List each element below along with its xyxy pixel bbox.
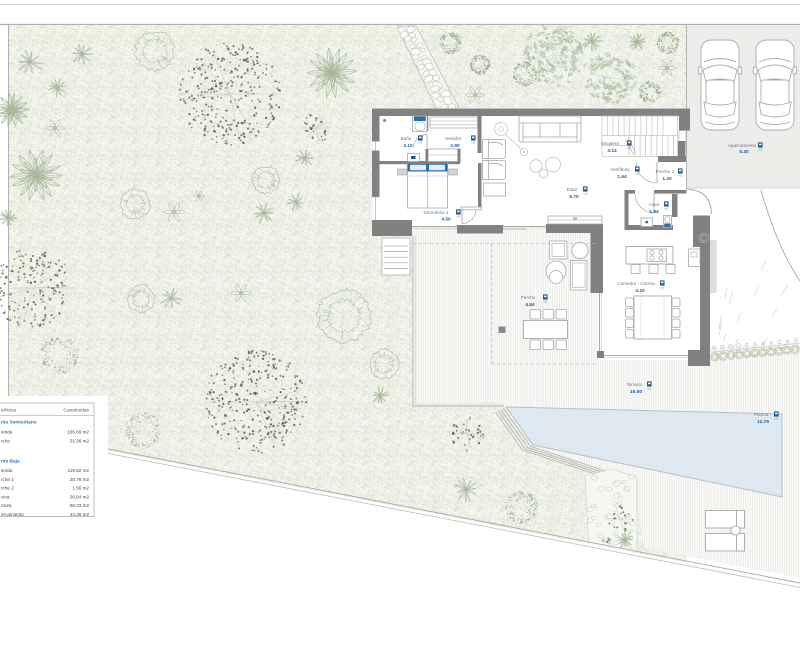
svg-text:m2: m2: [775, 416, 779, 420]
svg-text:Dormitorio 1: Dormitorio 1: [423, 210, 448, 215]
svg-text:28.76 m2: 28.76 m2: [70, 477, 90, 482]
svg-text:Porche 2: Porche 2: [656, 169, 675, 174]
svg-text:ercamiento: ercamiento: [1, 512, 24, 517]
svg-text:m2: m2: [665, 206, 669, 210]
svg-text:m2: m2: [636, 171, 640, 175]
svg-text:ienda: ienda: [1, 468, 13, 473]
svg-text:ienda: ienda: [1, 430, 13, 435]
svg-text:m2: m2: [419, 140, 423, 144]
svg-text:rche 1: rche 1: [1, 477, 14, 482]
svg-text:1.84: 1.84: [649, 209, 659, 215]
svg-text:m2: m2: [661, 285, 665, 289]
svg-text:4.50: 4.50: [441, 217, 451, 223]
svg-text:Terraza: Terraza: [626, 382, 642, 387]
svg-text:4.10: 4.10: [635, 288, 645, 294]
svg-text:5.30: 5.30: [739, 149, 749, 155]
svg-text:119.62 m2: 119.62 m2: [68, 468, 90, 473]
svg-text:m2: m2: [457, 214, 461, 218]
svg-text:Comedor - Cocina: Comedor - Cocina: [617, 281, 655, 286]
svg-text:12.75: 12.75: [757, 419, 769, 425]
svg-text:m2: m2: [628, 145, 632, 149]
svg-text:rche 2: rche 2: [1, 486, 14, 491]
svg-text:cina: cina: [1, 494, 10, 499]
svg-text:rche: rche: [1, 439, 10, 444]
svg-text:31.36 m2: 31.36 m2: [70, 439, 90, 444]
svg-text:165.69 m2: 165.69 m2: [67, 430, 89, 435]
svg-text:36.64 m2: 36.64 m2: [70, 494, 90, 499]
svg-text:4.84: 4.84: [525, 302, 535, 308]
svg-text:3.14: 3.14: [607, 148, 617, 154]
svg-text:1.64: 1.64: [617, 174, 627, 180]
svg-text:Porche: Porche: [521, 295, 536, 300]
svg-text:Baño: Baño: [401, 136, 412, 141]
svg-text:nta Baja: nta Baja: [1, 459, 20, 465]
svg-text:Construidas: Construidas: [63, 408, 89, 414]
svg-text:6.70: 6.70: [569, 194, 579, 200]
svg-text:erficies: erficies: [1, 408, 17, 414]
svg-text:1.56 m2: 1.56 m2: [72, 486, 89, 491]
svg-text:Escalera: Escalera: [601, 141, 619, 146]
svg-text:Aseo: Aseo: [649, 202, 660, 207]
svg-text:16.00: 16.00: [630, 389, 642, 395]
svg-text:m2: m2: [759, 147, 763, 151]
svg-text:rraza: rraza: [1, 503, 12, 508]
svg-text:m2: m2: [544, 299, 548, 303]
svg-text:m2: m2: [472, 140, 476, 144]
svg-text:Piscina: Piscina: [754, 412, 769, 417]
svg-text:2.90: 2.90: [450, 143, 460, 149]
svg-text:Aparcamiento: Aparcamiento: [728, 143, 757, 148]
svg-text:Vestidor: Vestidor: [445, 136, 462, 141]
svg-text:m2: m2: [584, 191, 588, 195]
svg-text:m2: m2: [648, 386, 652, 390]
svg-text:96.23 m2: 96.23 m2: [70, 503, 90, 508]
svg-text:44.36 m2: 44.36 m2: [70, 512, 90, 517]
svg-text:Estar: Estar: [567, 187, 578, 192]
svg-text:Vestíbulo: Vestíbulo: [611, 167, 630, 172]
svg-text:nta Semisótano: nta Semisótano: [1, 420, 37, 426]
svg-text:m2: m2: [679, 173, 683, 177]
svg-text:3.10: 3.10: [403, 143, 413, 149]
svg-text:1.20: 1.20: [662, 176, 672, 182]
